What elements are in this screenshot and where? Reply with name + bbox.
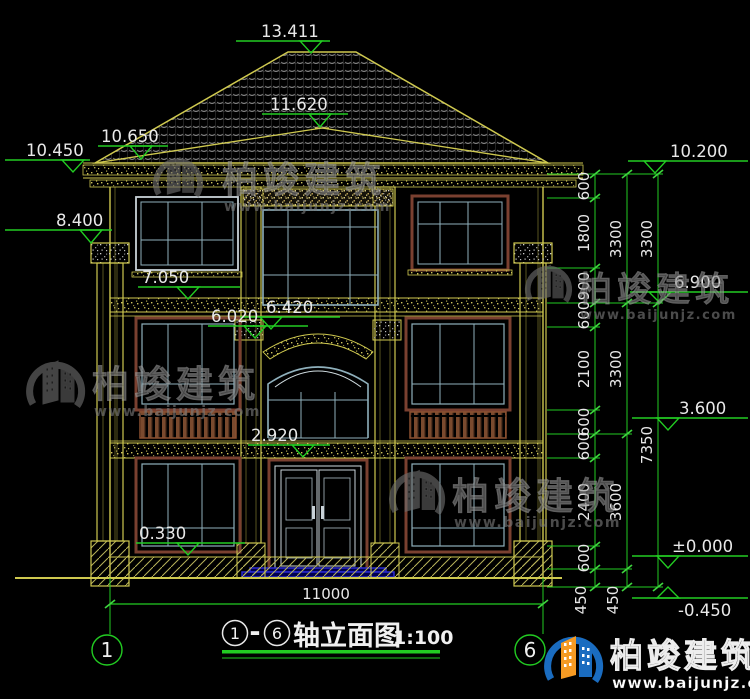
elev-left-eave: 10.450	[26, 141, 84, 160]
elev-floor3-sill: 7.050	[142, 268, 189, 287]
door-handle-right	[321, 506, 324, 519]
logo-mark-icon	[548, 636, 600, 681]
marker-10200: 10.200	[628, 142, 748, 173]
drawing-title: 1 - 6 轴立面图 1:100	[222, 617, 453, 658]
marker-0330: 0.330	[136, 524, 245, 555]
window-3f-right	[412, 196, 508, 270]
left-pilaster-capital	[91, 243, 129, 263]
window-3f-center	[263, 210, 378, 305]
title-axis-start: 1	[230, 624, 240, 643]
marker-13411: 13.411	[236, 22, 330, 53]
elev-pilaster-capital: 8.400	[56, 211, 103, 230]
dim-labels-inner: 600 1800 900 600 2100 600 600 2400 600 4…	[572, 172, 593, 615]
elev-porch-ridge: 11.620	[270, 95, 328, 114]
watermark-name: 柏竣建筑	[578, 270, 734, 310]
elev-roof-ridge: 13.411	[261, 22, 319, 41]
window-2f-right	[406, 318, 510, 410]
elev-floor2-band-bottom: 6.020	[211, 307, 258, 326]
watermark-top: 柏竣建筑 www.baijunjz.com	[156, 158, 391, 215]
right-plinth	[514, 541, 552, 586]
marker-10450: 10.450	[5, 141, 90, 172]
mid-left-plinth	[237, 543, 265, 578]
watermark-url: www.baijunjz.com	[580, 308, 737, 323]
louver-2f-right	[410, 412, 506, 438]
watermark-url: www.baijunjz.com	[224, 199, 391, 215]
watermark-name: 柏竣建筑	[452, 475, 620, 518]
right-dimension-chains: 600 1800 900 600 2100 600 600 2400 600 4…	[547, 170, 663, 614]
axis-bubble-1-label: 1	[101, 638, 114, 662]
title-separator: -	[249, 617, 260, 648]
dim-labels-outer: 3300 7350	[638, 220, 656, 464]
dim-450-1: 450	[572, 586, 590, 615]
watermark-url: www.baijunjz.com	[454, 515, 621, 531]
dim-3300-3: 3300	[638, 220, 656, 258]
arch-capital-right	[373, 320, 401, 340]
elev-floor2-level: 3.600	[679, 399, 726, 418]
watermark-left: 柏竣建筑 www.baijunjz.com	[30, 361, 261, 420]
elev-site-level: -0.450	[678, 601, 731, 620]
elev-floor1-lintel: 2.920	[251, 426, 298, 445]
elev-floor2-band-top: 6.420	[266, 298, 313, 317]
watermark-name: 柏竣建筑	[92, 363, 260, 406]
dim-450-2: 450	[604, 586, 622, 615]
right-pilaster-capital	[514, 243, 552, 263]
dim-1800: 1800	[575, 214, 593, 252]
plinth-and-ground	[15, 541, 562, 586]
watermark-url: www.baijunjz.com	[94, 404, 261, 420]
company-logo: 柏竣建筑 www.baijunjz.com	[548, 636, 750, 692]
logo-url: www.baijunjz.com	[612, 674, 750, 692]
axis-bubble-6-label: 6	[524, 638, 537, 662]
logo-company-name: 柏竣建筑	[610, 636, 750, 675]
marker-3600: 3.600	[632, 399, 748, 430]
elev-ground-floor: ±0.000	[672, 537, 733, 556]
dim-600-4: 600	[575, 432, 593, 461]
dim-3300-2: 3300	[607, 350, 625, 388]
marker-neg450: -0.450	[632, 587, 748, 620]
window-3f-left	[136, 197, 238, 270]
watermark-right: 柏竣建筑 www.baijunjz.com	[528, 265, 737, 323]
base-course	[110, 557, 543, 578]
watermark-bottom: 柏竣建筑 www.baijunjz.com	[392, 471, 621, 531]
overall-width-label: 11000	[302, 585, 350, 603]
dim-7350: 7350	[638, 426, 656, 464]
drawing-svg: 600 1800 900 600 2100 600 600 2400 600 4…	[0, 0, 750, 699]
dim-600-1: 600	[575, 172, 593, 201]
dim-2100: 2100	[575, 350, 593, 388]
elev-window-sill: 0.330	[139, 524, 186, 543]
watermark-name: 柏竣建筑	[222, 160, 386, 201]
door-handle-left	[312, 506, 315, 519]
marker-0000: ±0.000	[632, 537, 748, 568]
elev-left-roof-eave: 10.650	[101, 127, 159, 146]
title-text: 轴立面图	[293, 620, 401, 652]
entry-double-door	[269, 460, 367, 570]
title-scale: 1:100	[393, 627, 453, 649]
title-axis-end: 6	[272, 624, 282, 643]
cad-elevation-drawing: 600 1800 900 600 2100 600 600 2400 600 4…	[0, 0, 750, 699]
dim-3300-1: 3300	[607, 220, 625, 258]
entry-arch-band	[263, 334, 373, 359]
mid-right-plinth	[371, 543, 399, 578]
dim-600-5: 600	[575, 544, 593, 573]
title-underline-thick	[222, 650, 440, 654]
sill-3f-right	[408, 270, 512, 275]
marker-8400: 8.400	[5, 211, 112, 243]
elev-right-eave: 10.200	[670, 142, 728, 161]
